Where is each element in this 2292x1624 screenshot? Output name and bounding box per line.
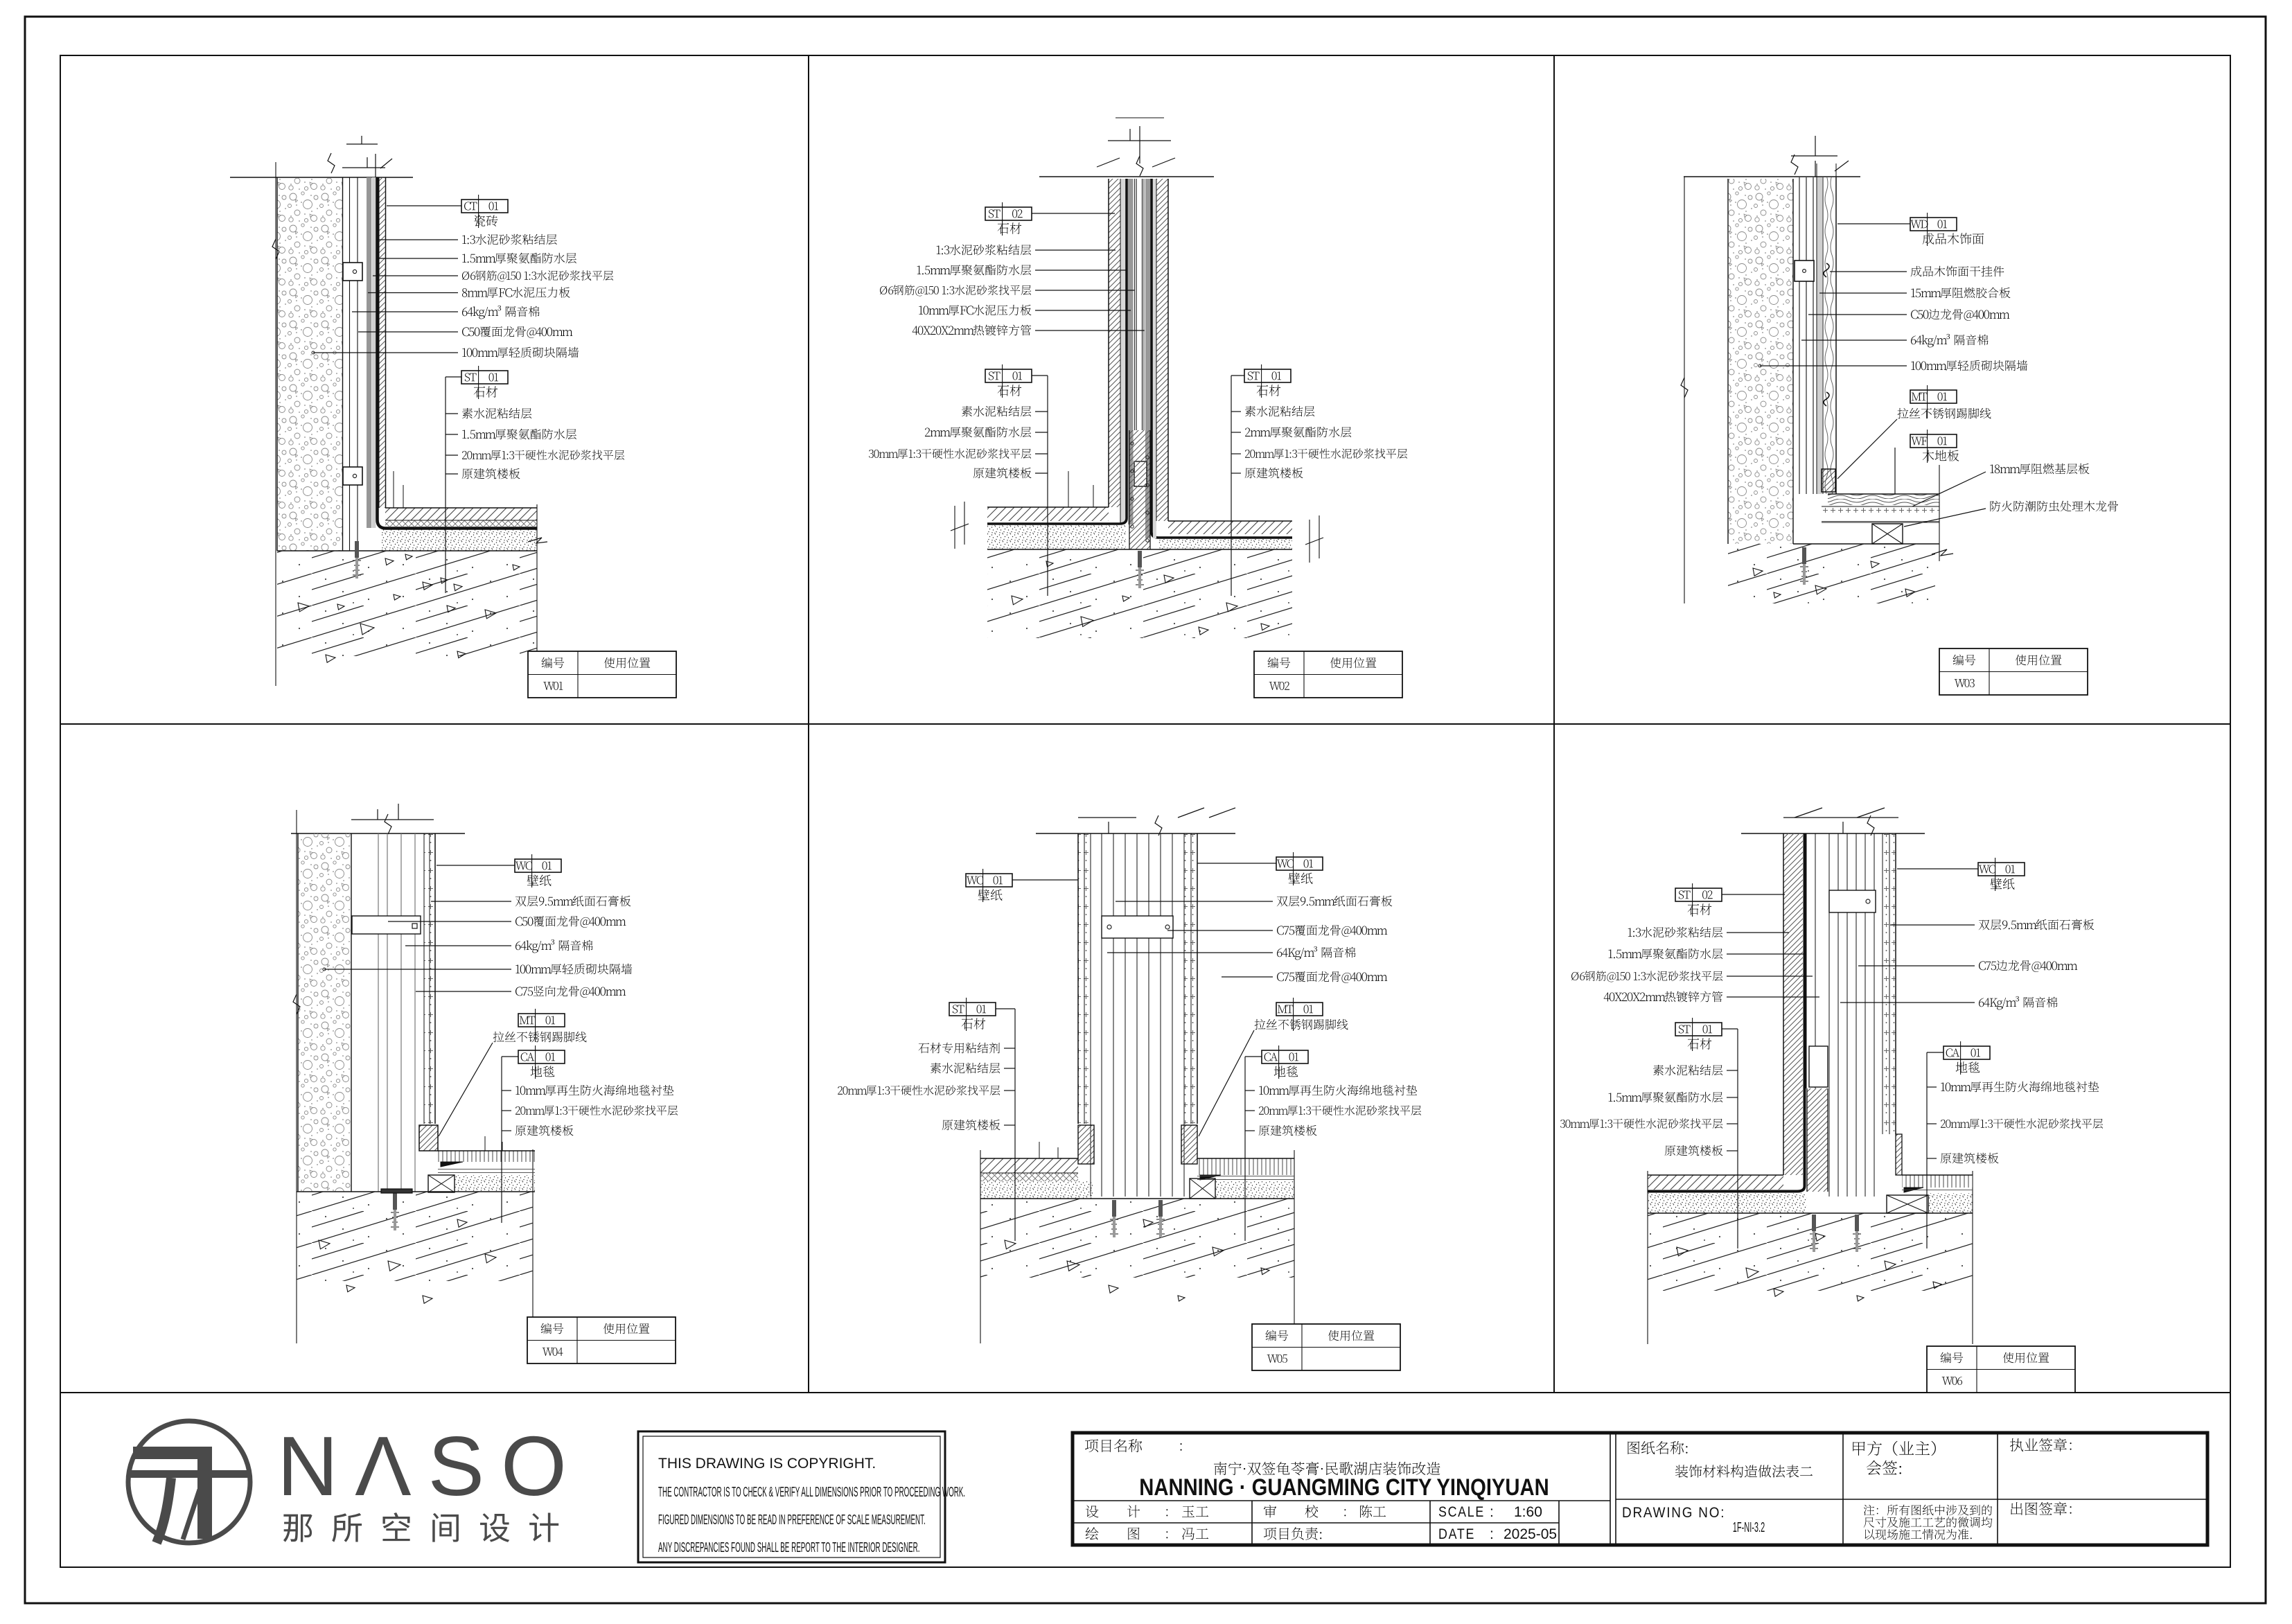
svg-text:NANNING · GUANGMING CITY YINQI: NANNING · GUANGMING CITY YINQIYUAN [1139,1474,1549,1501]
svg-text:SCALE: SCALE [1438,1504,1485,1521]
svg-text:THE CONTRACTOR IS TO CHECK & V: THE CONTRACTOR IS TO CHECK & VERIFY ALL … [658,1484,965,1500]
svg-text:DATE: DATE [1438,1526,1475,1543]
svg-text:DRAWING NO:: DRAWING NO: [1622,1505,1725,1521]
svg-text:FIGURED DIMENSIONS TO BE READ: FIGURED DIMENSIONS TO BE READ IN PREFERE… [658,1512,926,1528]
svg-text:2025-05: 2025-05 [1504,1526,1557,1542]
svg-text:THIS DRAWING IS COPYRIGHT.: THIS DRAWING IS COPYRIGHT. [658,1456,876,1472]
svg-text:1F-NI-3.2: 1F-NI-3.2 [1733,1520,1765,1535]
svg-text:NΛSO: NΛSO [277,1419,583,1513]
svg-text:1:60: 1:60 [1514,1504,1542,1520]
svg-text::: : [1490,1504,1494,1520]
svg-text:ANY DISCREPANCIES FOUND SHALL: ANY DISCREPANCIES FOUND SHALL BE REPORT … [658,1539,919,1555]
svg-text::: : [1490,1526,1494,1542]
